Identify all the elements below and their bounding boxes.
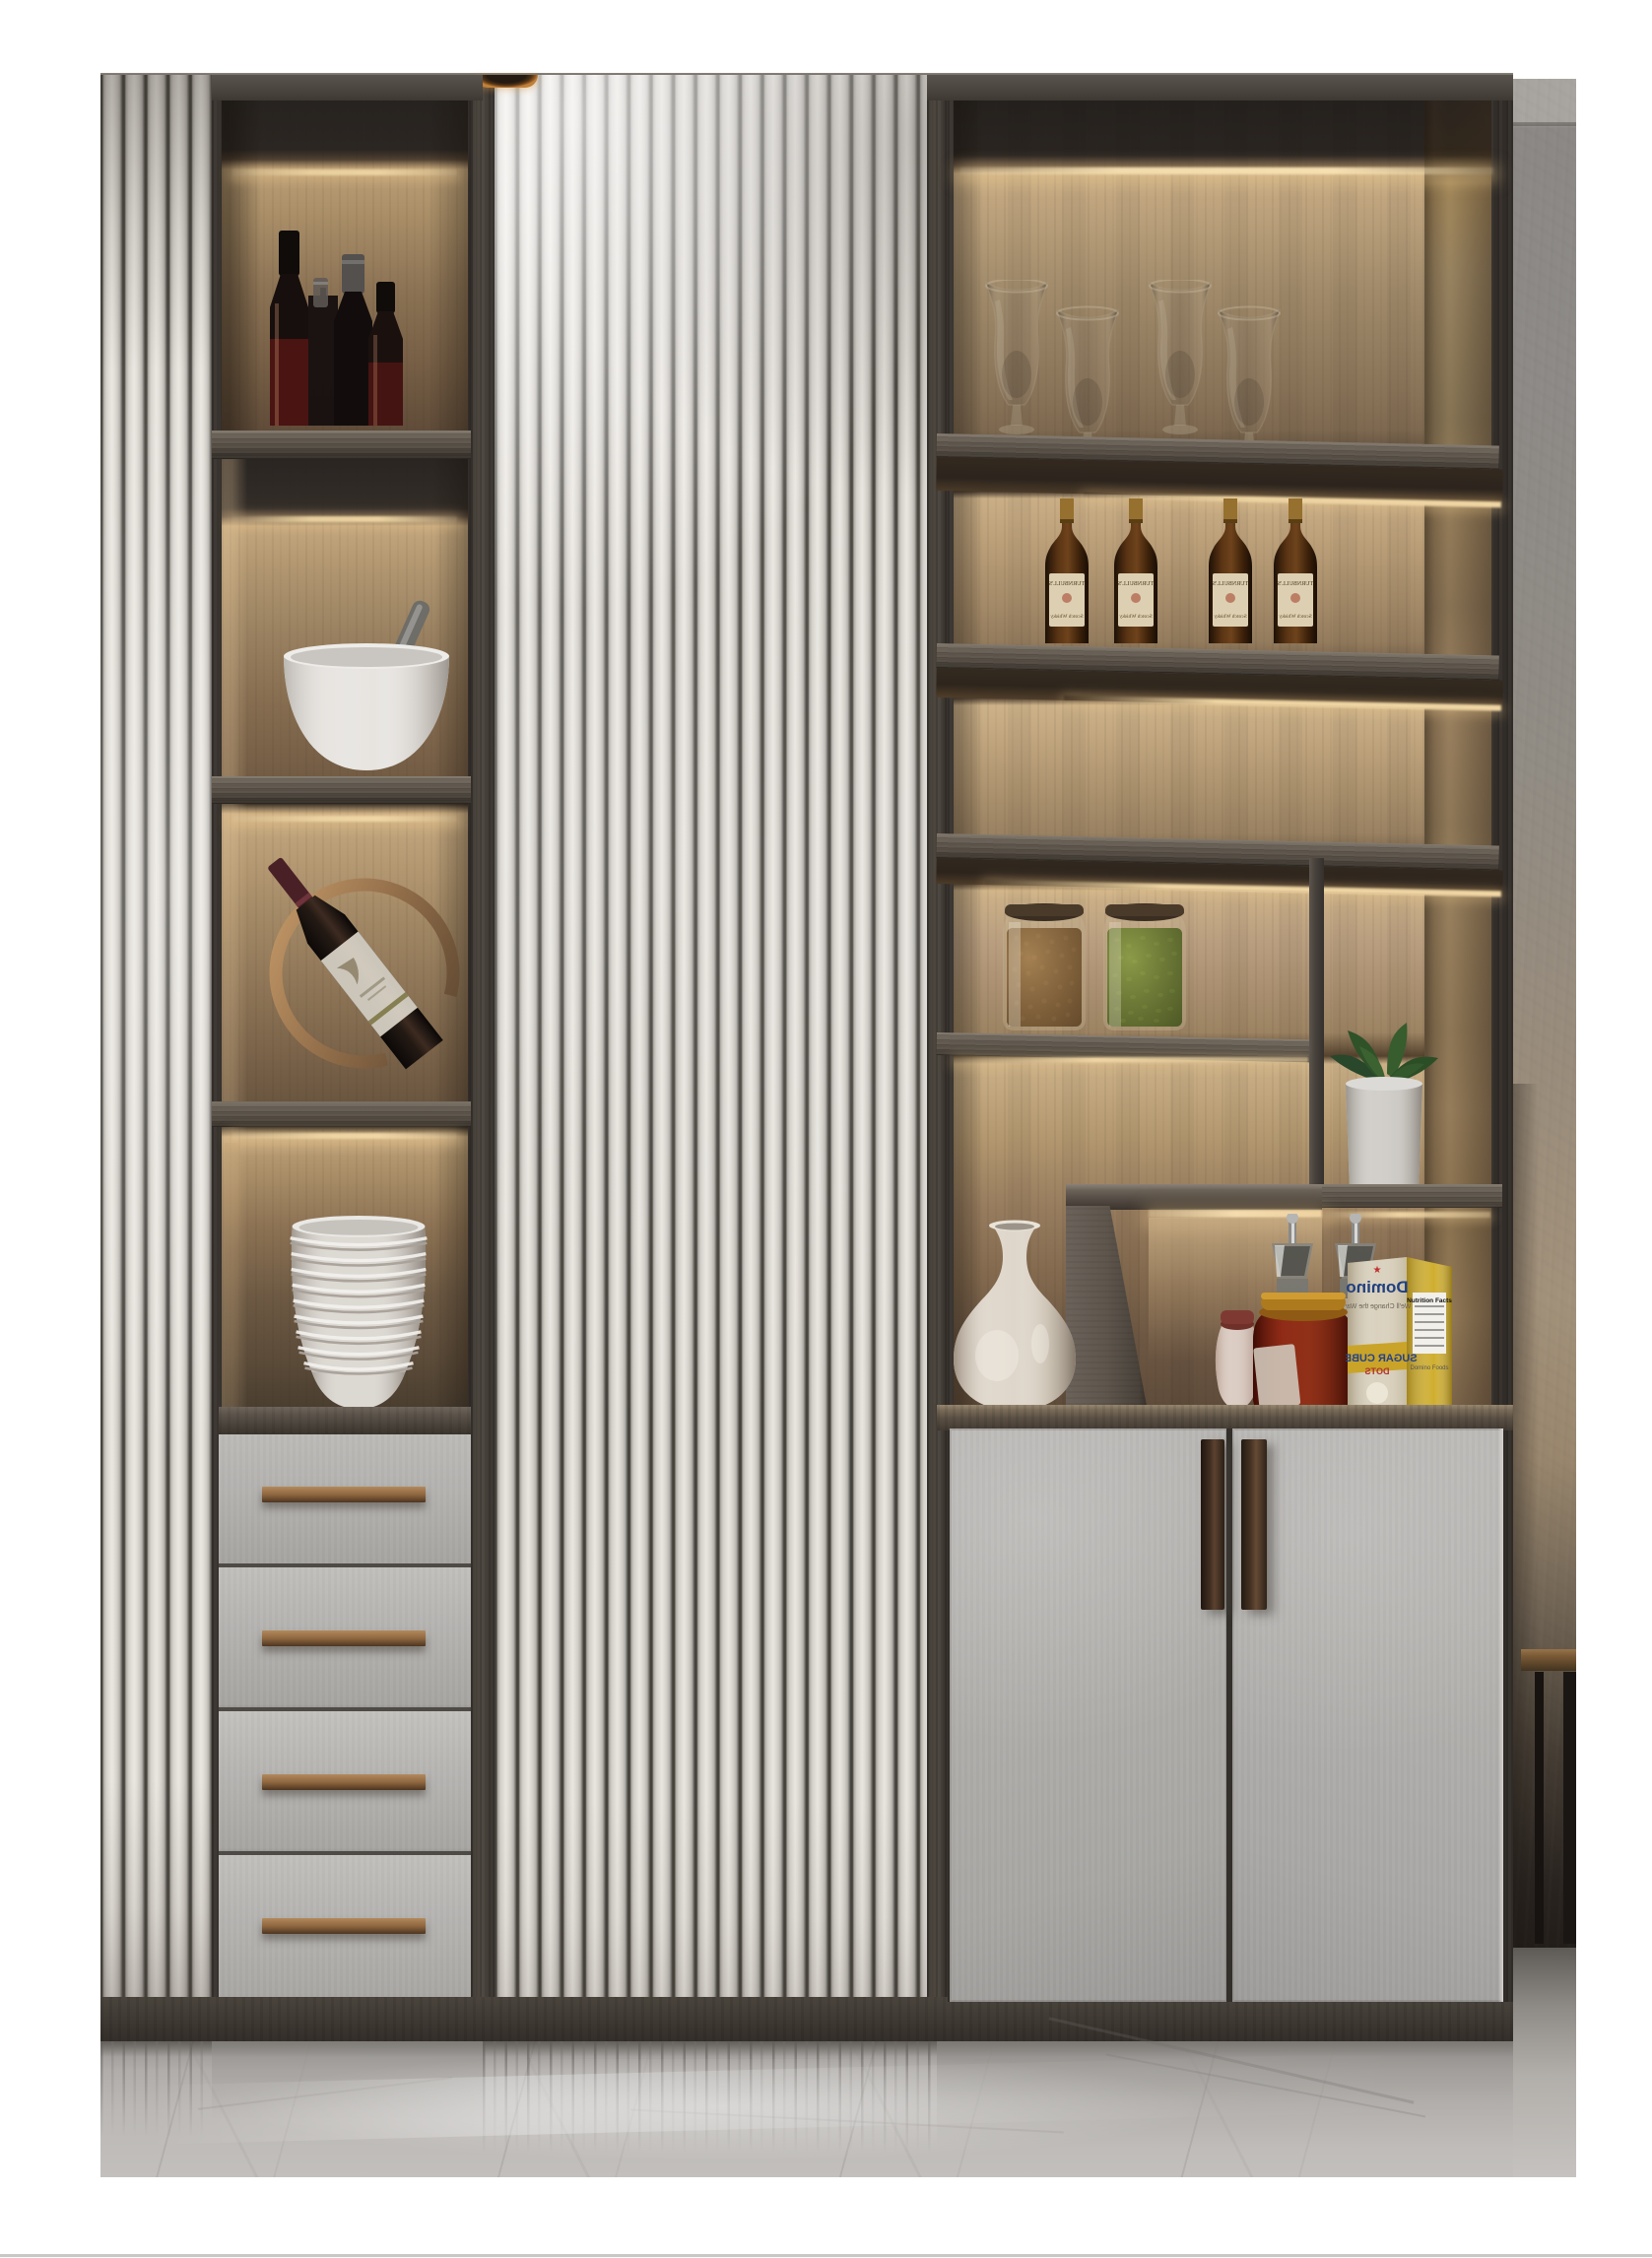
svg-text:DOTS: DOTS — [1364, 1366, 1389, 1376]
svg-text:SUGAR CUBES: SUGAR CUBES — [1346, 1353, 1418, 1364]
svg-text:★: ★ — [1372, 1265, 1381, 1276]
svg-text:Nutrition Facts: Nutrition Facts — [1407, 1297, 1452, 1304]
svg-text:Scotch Whisky: Scotch Whisky — [1050, 614, 1084, 620]
svg-text:We'll Change the Way: We'll Change the Way — [1346, 1303, 1411, 1310]
svg-text:TURNBULL'S: TURNBULL'S — [1049, 581, 1085, 587]
svg-text:Domino: Domino — [1346, 1278, 1408, 1296]
svg-text:Domino Foods: Domino Foods — [1410, 1365, 1448, 1371]
